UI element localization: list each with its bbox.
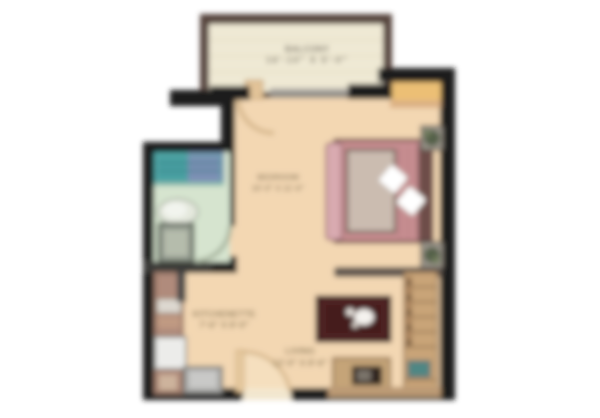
svg-text:12'-0" X 8'-6": 12'-0" X 8'-6": [273, 358, 328, 368]
svg-text:10'-0" X 11'-6": 10'-0" X 11'-6": [252, 184, 305, 193]
svg-text:KITCHENETTE: KITCHENETTE: [193, 309, 256, 319]
svg-text:7'-6" X 8'-0": 7'-6" X 8'-0": [199, 320, 249, 330]
svg-text:BALCONY: BALCONY: [285, 44, 330, 54]
svg-text:16'-10" X 5'-0": 16'-10" X 5'-0": [266, 55, 348, 65]
svg-text:BEDROOM: BEDROOM: [257, 173, 299, 182]
svg-text:LIVING: LIVING: [285, 346, 315, 356]
